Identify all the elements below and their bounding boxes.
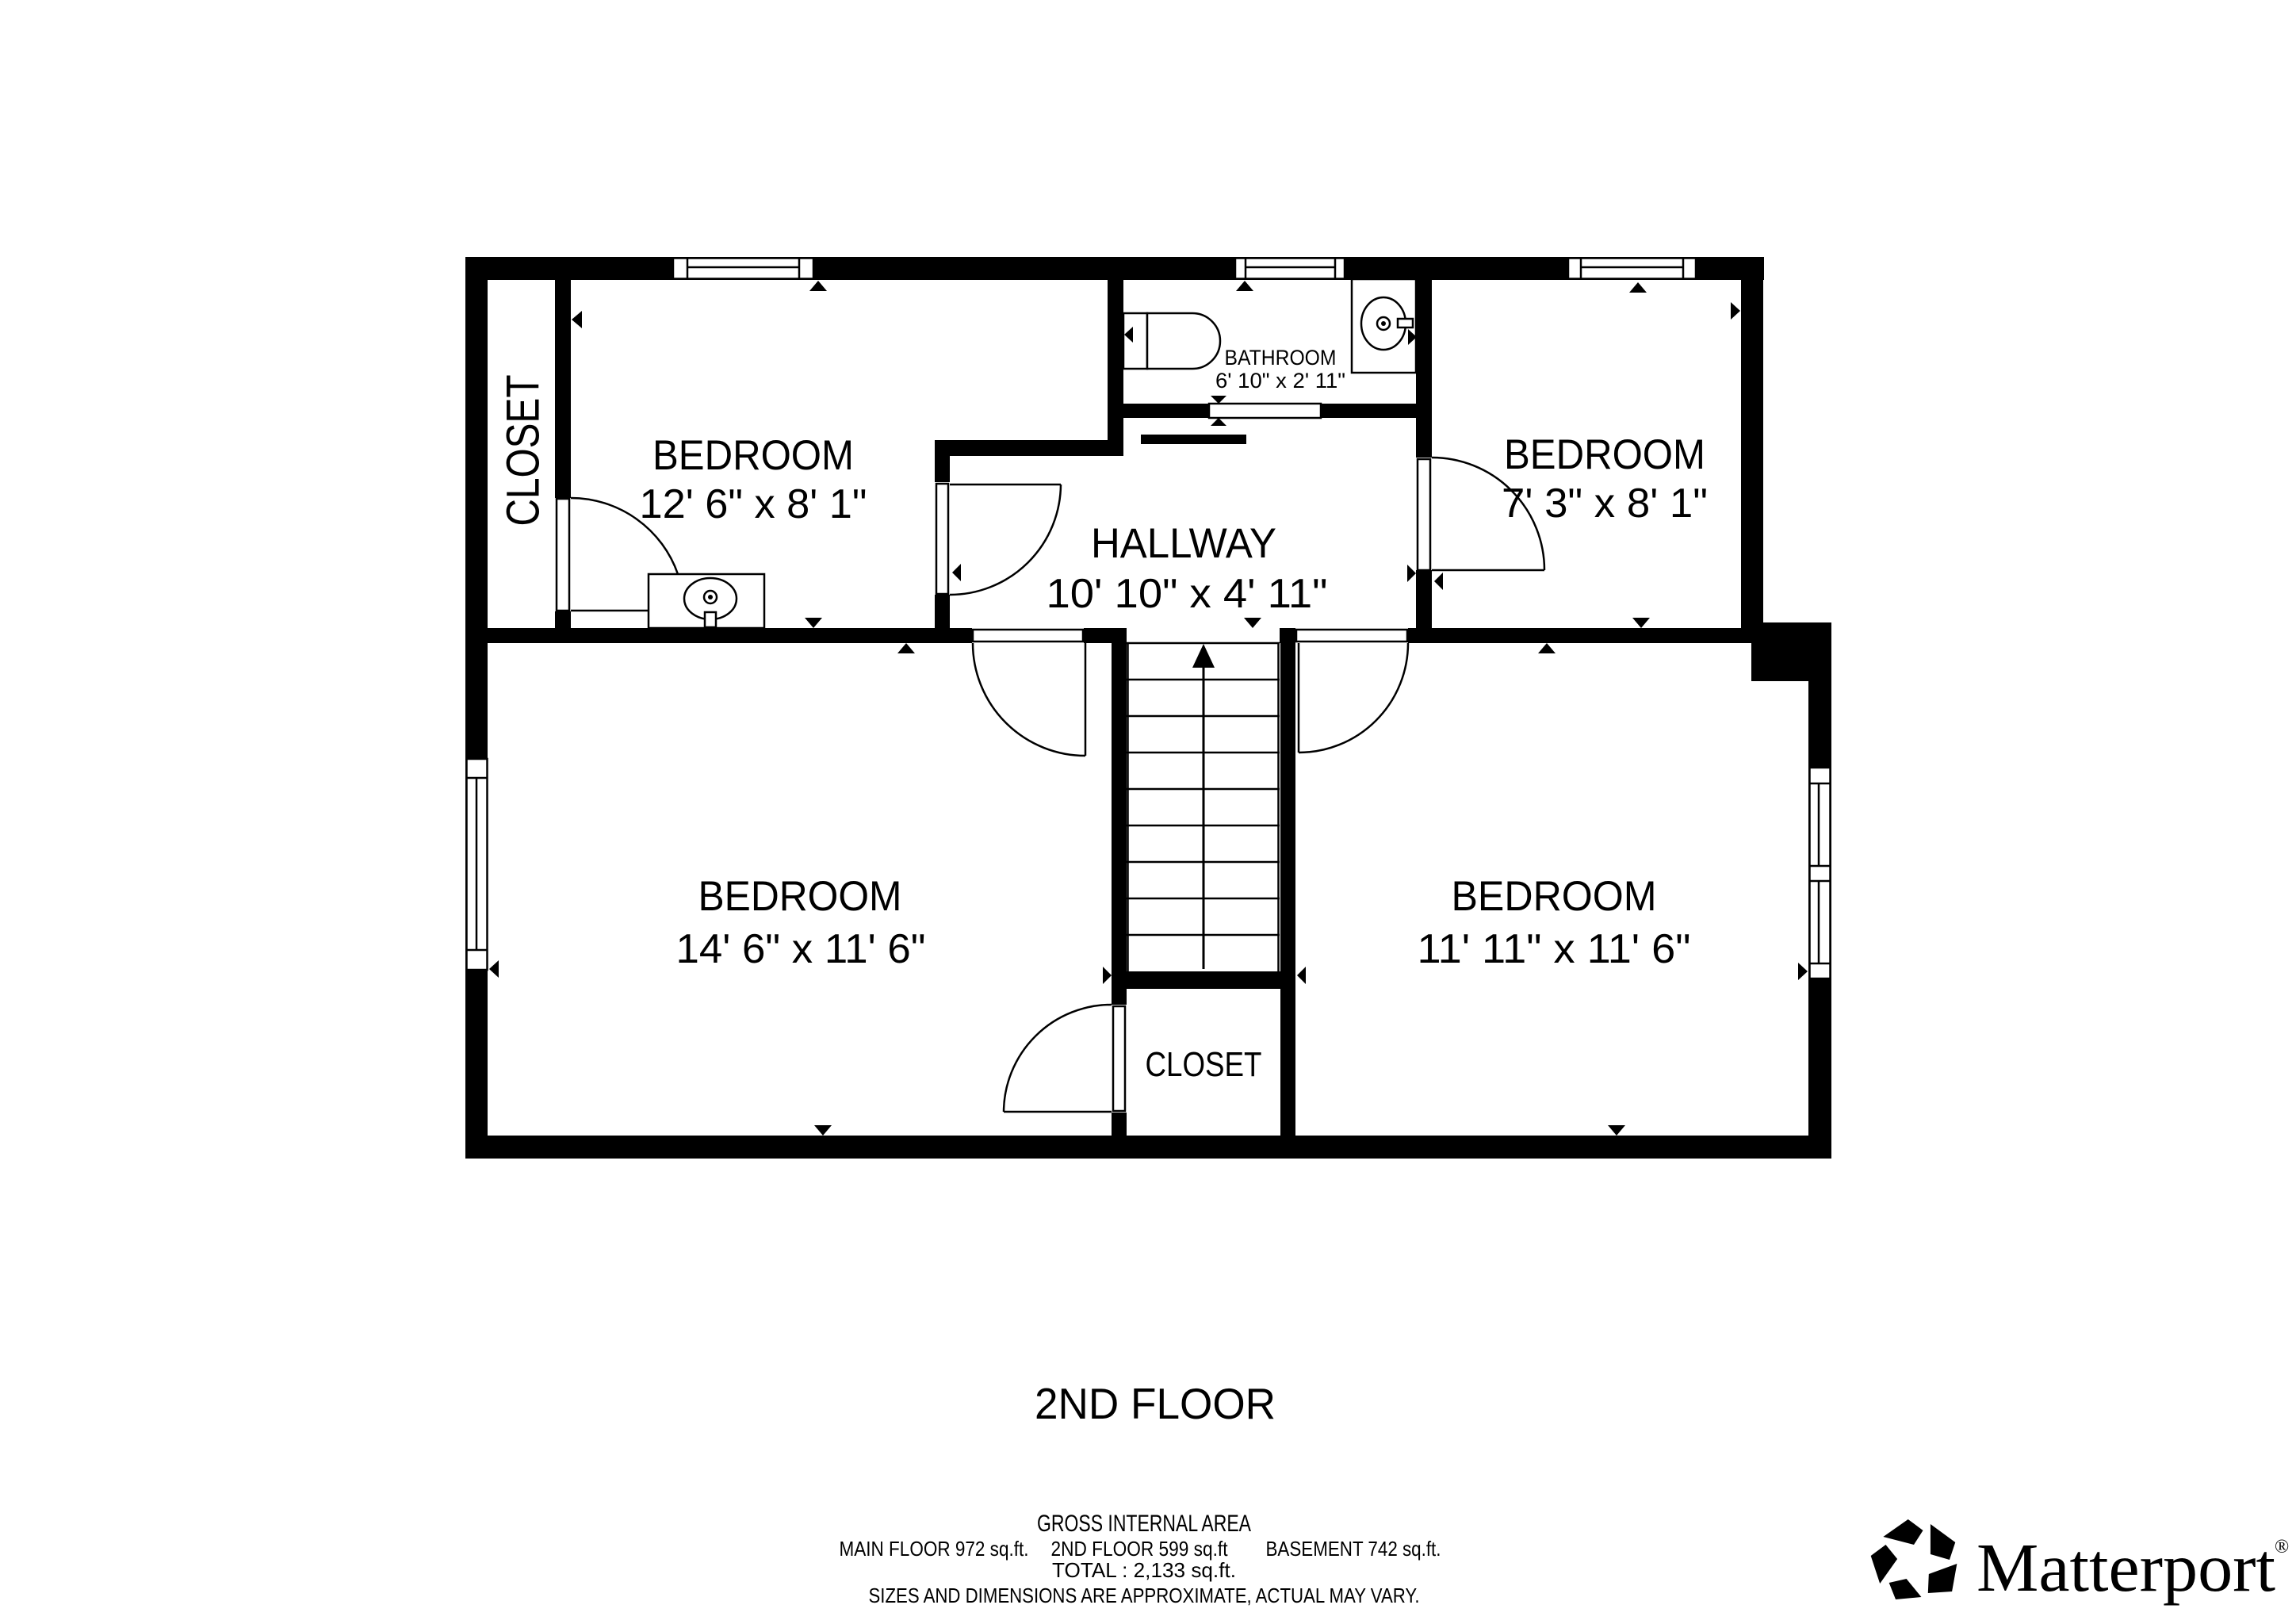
svg-text:MAIN FLOOR 972 sq.ft.: MAIN FLOOR 972 sq.ft. — [840, 1537, 1029, 1561]
svg-text:2ND FLOOR 599 sq.ft: 2ND FLOOR 599 sq.ft — [1051, 1537, 1229, 1561]
svg-text:BEDROOM: BEDROOM — [1504, 431, 1705, 478]
svg-text:Matterport: Matterport — [1976, 1529, 2275, 1606]
svg-text:SIZES AND DIMENSIONS ARE APPRO: SIZES AND DIMENSIONS ARE APPROXIMATE, AC… — [869, 1584, 1420, 1607]
svg-text:BEDROOM: BEDROOM — [698, 873, 902, 920]
svg-text:6' 10" x 2' 11": 6' 10" x 2' 11" — [1215, 369, 1345, 393]
svg-text:12' 6" x 8' 1": 12' 6" x 8' 1" — [640, 481, 867, 527]
svg-text:10' 10" x 4' 11": 10' 10" x 4' 11" — [1047, 571, 1328, 617]
svg-text:BEDROOM: BEDROOM — [652, 432, 854, 479]
svg-text:HALLWAY: HALLWAY — [1091, 520, 1276, 567]
svg-text:7' 3" x 8' 1": 7' 3" x 8' 1" — [1502, 481, 1708, 527]
svg-text:GROSS INTERNAL AREA: GROSS INTERNAL AREA — [1037, 1511, 1251, 1537]
svg-text:BATHROOM: BATHROOM — [1225, 346, 1337, 370]
svg-text:14' 6" x 11' 6": 14' 6" x 11' 6" — [676, 926, 926, 972]
svg-text:11' 11" x 11' 6": 11' 11" x 11' 6" — [1418, 926, 1691, 972]
svg-text:2ND FLOOR: 2ND FLOOR — [1035, 1379, 1276, 1428]
svg-text:TOTAL : 2,133 sq.ft.: TOTAL : 2,133 sq.ft. — [1052, 1558, 1236, 1582]
svg-text:BASEMENT 742 sq.ft.: BASEMENT 742 sq.ft. — [1266, 1537, 1441, 1561]
svg-text:CLOSET: CLOSET — [1146, 1045, 1262, 1084]
svg-text:BEDROOM: BEDROOM — [1452, 873, 1657, 920]
svg-text:®: ® — [2275, 1537, 2289, 1557]
svg-text:CLOSET: CLOSET — [498, 375, 549, 527]
